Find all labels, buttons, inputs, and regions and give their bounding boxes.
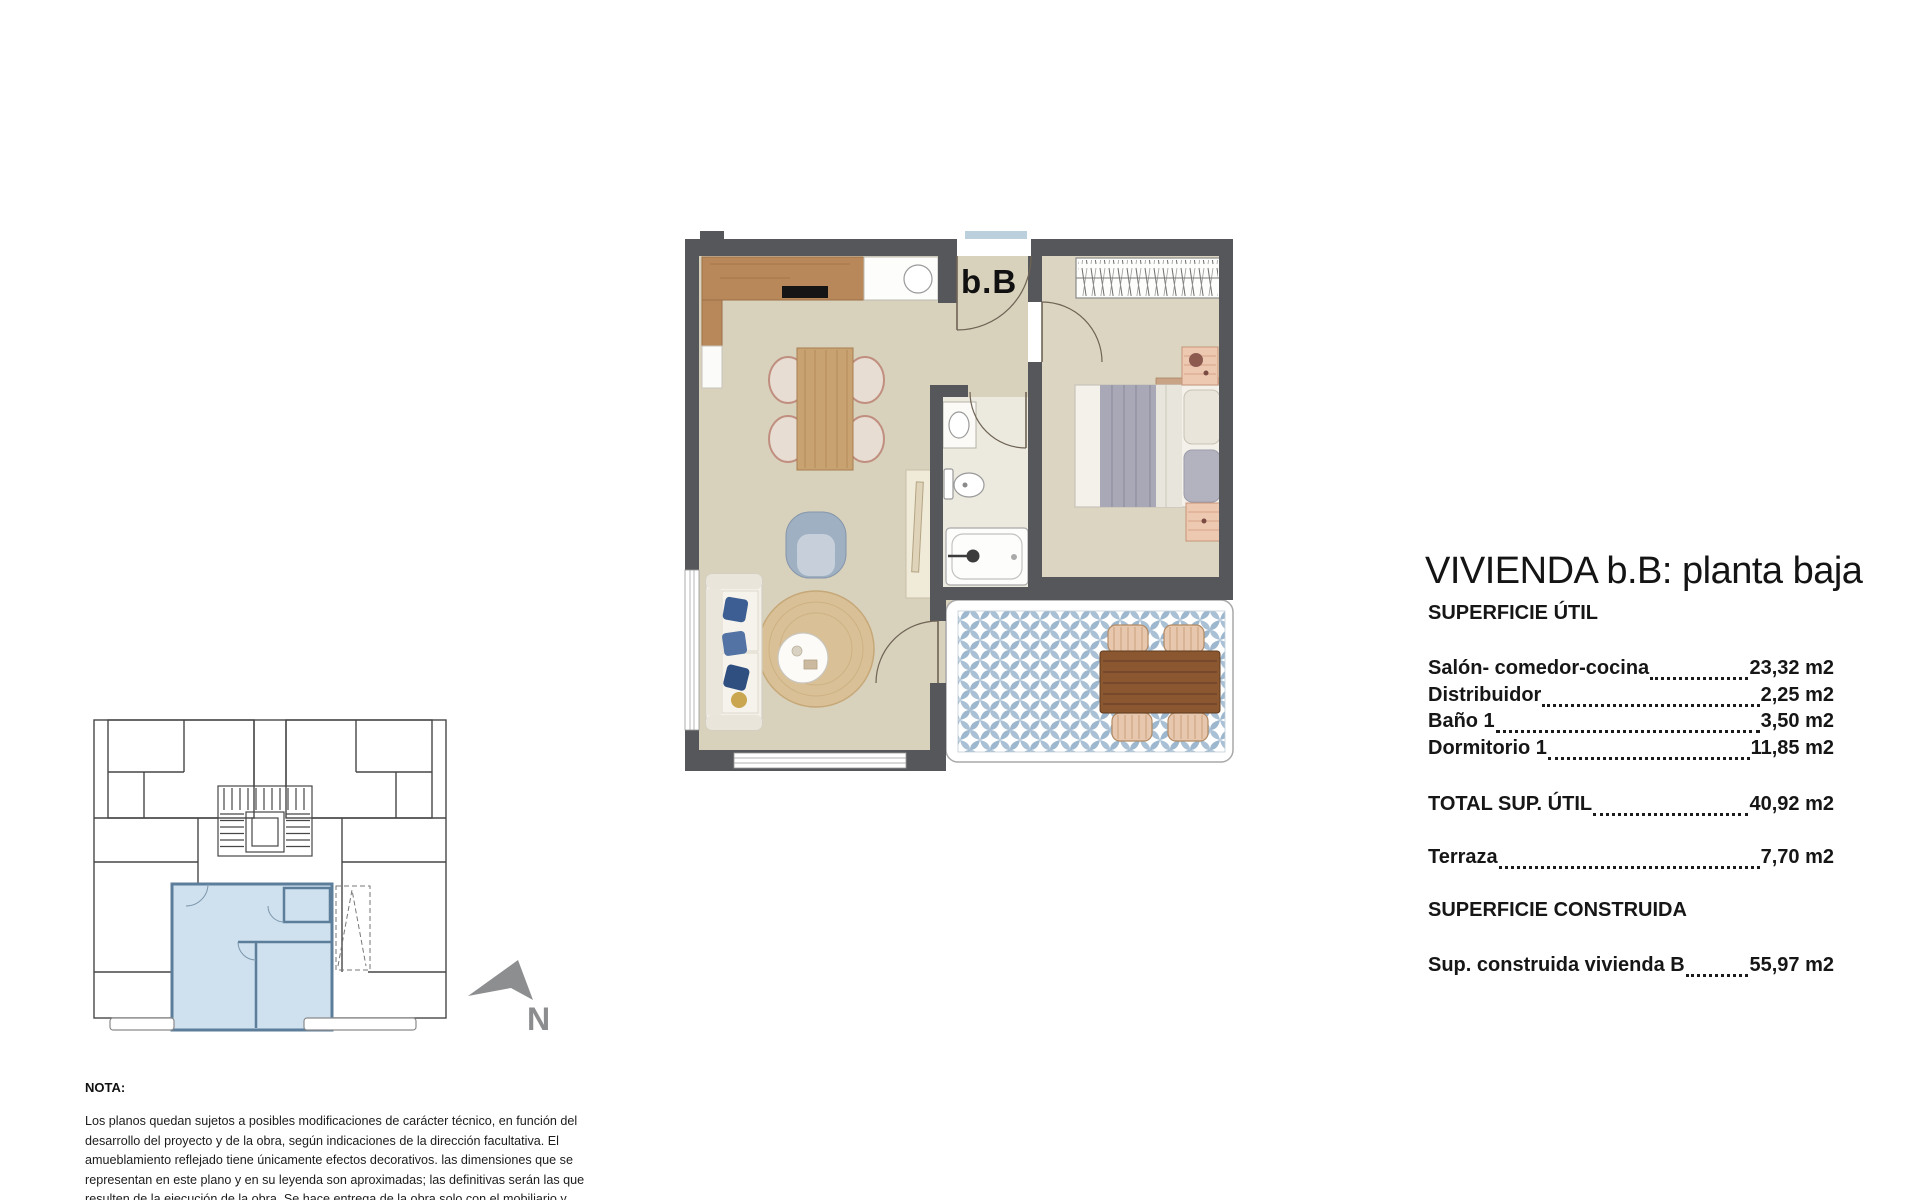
surface-row-value: 11,85 m2 bbox=[1751, 737, 1834, 760]
bathroom-vanity bbox=[943, 402, 976, 448]
sofa-pillow bbox=[731, 692, 747, 708]
section-superficie-construida: SUPERFICIE CONSTRUIDA bbox=[1428, 899, 1687, 922]
window bbox=[734, 753, 906, 768]
wardrobe bbox=[1076, 258, 1220, 298]
bed-blanket bbox=[1100, 385, 1162, 507]
kitchen-cabinet bbox=[702, 346, 722, 388]
surface-row: Salón- comedor-cocina 23,32 m2 bbox=[1428, 657, 1834, 680]
terrace-chair bbox=[1168, 713, 1208, 741]
surface-panel: VIVIENDA b.B: planta baja SUPERFICIE ÚTI… bbox=[1425, 550, 1837, 990]
terrace-chair bbox=[1108, 625, 1148, 653]
kitchen-sink bbox=[904, 265, 932, 293]
built-row-label: Sup. construida vivienda B bbox=[1428, 954, 1685, 977]
surface-row-value: 3,50 m2 bbox=[1761, 710, 1834, 733]
sofa bbox=[706, 574, 762, 730]
window bbox=[685, 570, 699, 730]
coffee-table bbox=[778, 633, 828, 683]
surface-row-label: Distribuidor bbox=[1428, 684, 1541, 707]
dot-leader bbox=[1650, 672, 1748, 680]
terrace-row-value: 7,70 m2 bbox=[1761, 846, 1834, 869]
sofa-pillow bbox=[722, 596, 749, 623]
highlighted-unit bbox=[172, 884, 332, 1030]
unit-label: b.B bbox=[961, 263, 1017, 300]
terrace-table bbox=[1100, 651, 1220, 713]
north-label: N bbox=[527, 1001, 550, 1037]
apartment-floor-plan: b.B bbox=[660, 220, 1260, 780]
built-row-value: 55,97 m2 bbox=[1749, 954, 1834, 977]
section-superficie-util: SUPERFICIE ÚTIL bbox=[1428, 602, 1598, 625]
dot-leader bbox=[1496, 725, 1760, 733]
bed-pillow bbox=[1184, 390, 1220, 444]
note-body: Los planos quedan sujetos a posibles mod… bbox=[85, 1112, 630, 1200]
dot-leader bbox=[1686, 969, 1749, 977]
bed-pillow bbox=[1184, 450, 1220, 502]
plan-sheet: b.B bbox=[0, 0, 1920, 1200]
shower-head bbox=[967, 550, 980, 563]
total-row-value: 40,92 m2 bbox=[1749, 793, 1834, 816]
north-indicator: N bbox=[455, 948, 565, 1043]
page-title: VIVIENDA b.B: planta baja bbox=[1425, 550, 1862, 593]
plant bbox=[1189, 353, 1203, 367]
built-row: Sup. construida vivienda B 55,97 m2 bbox=[1428, 954, 1834, 977]
dot-leader bbox=[1499, 861, 1760, 869]
surface-row-value: 2,25 m2 bbox=[1761, 684, 1834, 707]
terrace-chair bbox=[1164, 625, 1204, 653]
bed bbox=[1075, 378, 1221, 507]
terrace-chair bbox=[1112, 713, 1152, 741]
surface-row: Distribuidor 2,25 m2 bbox=[1428, 684, 1834, 707]
console-sideboard bbox=[906, 470, 934, 598]
bed-sheet-fold bbox=[1156, 385, 1182, 507]
north-arrow-icon bbox=[468, 960, 533, 1000]
entrance-mat bbox=[965, 231, 1027, 239]
dot-leader bbox=[1593, 808, 1748, 816]
terrace-row: Terraza 7,70 m2 bbox=[1428, 846, 1834, 869]
bathroom-sink bbox=[949, 412, 969, 438]
surface-row-label: Dormitorio 1 bbox=[1428, 737, 1547, 760]
sofa-pillow bbox=[722, 630, 748, 656]
dot-leader bbox=[1548, 752, 1750, 760]
surface-row-label: Salón- comedor-cocina bbox=[1428, 657, 1649, 680]
surface-row: Dormitorio 1 11,85 m2 bbox=[1428, 737, 1834, 760]
note-block: NOTA: Los planos quedan sujetos a posibl… bbox=[85, 1080, 630, 1200]
nightstand bbox=[1182, 347, 1218, 385]
building-key-plan bbox=[88, 712, 453, 1037]
terrace-row-label: Terraza bbox=[1428, 846, 1498, 869]
note-heading: NOTA: bbox=[85, 1080, 630, 1095]
surface-row-value: 23,32 m2 bbox=[1749, 657, 1834, 680]
cooktop bbox=[782, 286, 828, 298]
dot-leader bbox=[1542, 699, 1759, 707]
total-row-label: TOTAL SUP. ÚTIL bbox=[1428, 793, 1592, 816]
total-row: TOTAL SUP. ÚTIL 40,92 m2 bbox=[1428, 793, 1834, 816]
armchair bbox=[786, 512, 846, 578]
terrace bbox=[946, 600, 1233, 762]
surface-row: Baño 1 3,50 m2 bbox=[1428, 710, 1834, 733]
bathtub bbox=[946, 528, 1028, 585]
nightstand bbox=[1186, 503, 1221, 541]
surface-row-label: Baño 1 bbox=[1428, 710, 1495, 733]
